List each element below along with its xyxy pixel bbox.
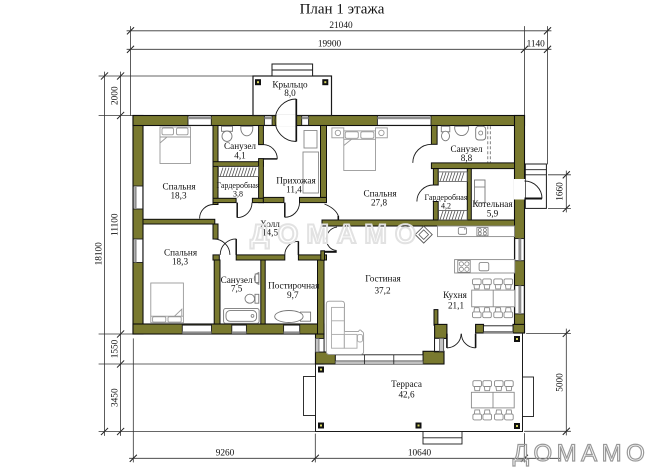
svg-text:ДОМАМО: ДОМАМО bbox=[250, 219, 424, 249]
svg-text:11,4: 11,4 bbox=[286, 185, 302, 195]
svg-text:10640: 10640 bbox=[408, 449, 432, 459]
svg-text:Гостиная: Гостиная bbox=[365, 274, 401, 284]
svg-text:9,7: 9,7 bbox=[287, 290, 299, 300]
svg-text:42,6: 42,6 bbox=[398, 390, 414, 400]
svg-text:7,5: 7,5 bbox=[231, 284, 243, 294]
svg-text:37,2: 37,2 bbox=[374, 286, 390, 296]
svg-text:27,8: 27,8 bbox=[371, 198, 387, 208]
svg-text:18100: 18100 bbox=[95, 242, 105, 266]
svg-text:3450: 3450 bbox=[111, 388, 121, 407]
svg-text:Кухня: Кухня bbox=[443, 290, 468, 300]
svg-text:19900: 19900 bbox=[318, 40, 342, 50]
svg-text:18,3: 18,3 bbox=[170, 191, 186, 201]
svg-text:5000: 5000 bbox=[556, 373, 566, 392]
svg-text:18,3: 18,3 bbox=[172, 257, 188, 267]
svg-text:Постирочная: Постирочная bbox=[268, 281, 320, 291]
svg-text:4,1: 4,1 bbox=[234, 151, 246, 161]
svg-text:Котельная: Котельная bbox=[472, 199, 513, 209]
svg-text:3,8: 3,8 bbox=[233, 190, 243, 199]
svg-text:5,9: 5,9 bbox=[487, 209, 499, 219]
svg-text:Терраса: Терраса bbox=[391, 379, 422, 389]
svg-text:ДОМАМО: ДОМАМО bbox=[513, 440, 650, 467]
svg-text:9260: 9260 bbox=[216, 449, 235, 459]
svg-text:8,8: 8,8 bbox=[461, 153, 473, 163]
svg-text:2000: 2000 bbox=[111, 86, 121, 105]
svg-text:11100: 11100 bbox=[111, 213, 121, 236]
svg-text:1140: 1140 bbox=[527, 40, 546, 50]
svg-text:План 1 этажа: План 1 этажа bbox=[300, 2, 385, 18]
svg-text:21040: 21040 bbox=[329, 21, 353, 31]
svg-text:21,1: 21,1 bbox=[448, 301, 464, 311]
svg-text:1550: 1550 bbox=[111, 339, 121, 358]
svg-text:8,0: 8,0 bbox=[284, 88, 296, 98]
svg-text:4,2: 4,2 bbox=[441, 202, 451, 211]
svg-text:Санузел: Санузел bbox=[224, 141, 256, 151]
svg-text:1660: 1660 bbox=[556, 182, 566, 201]
